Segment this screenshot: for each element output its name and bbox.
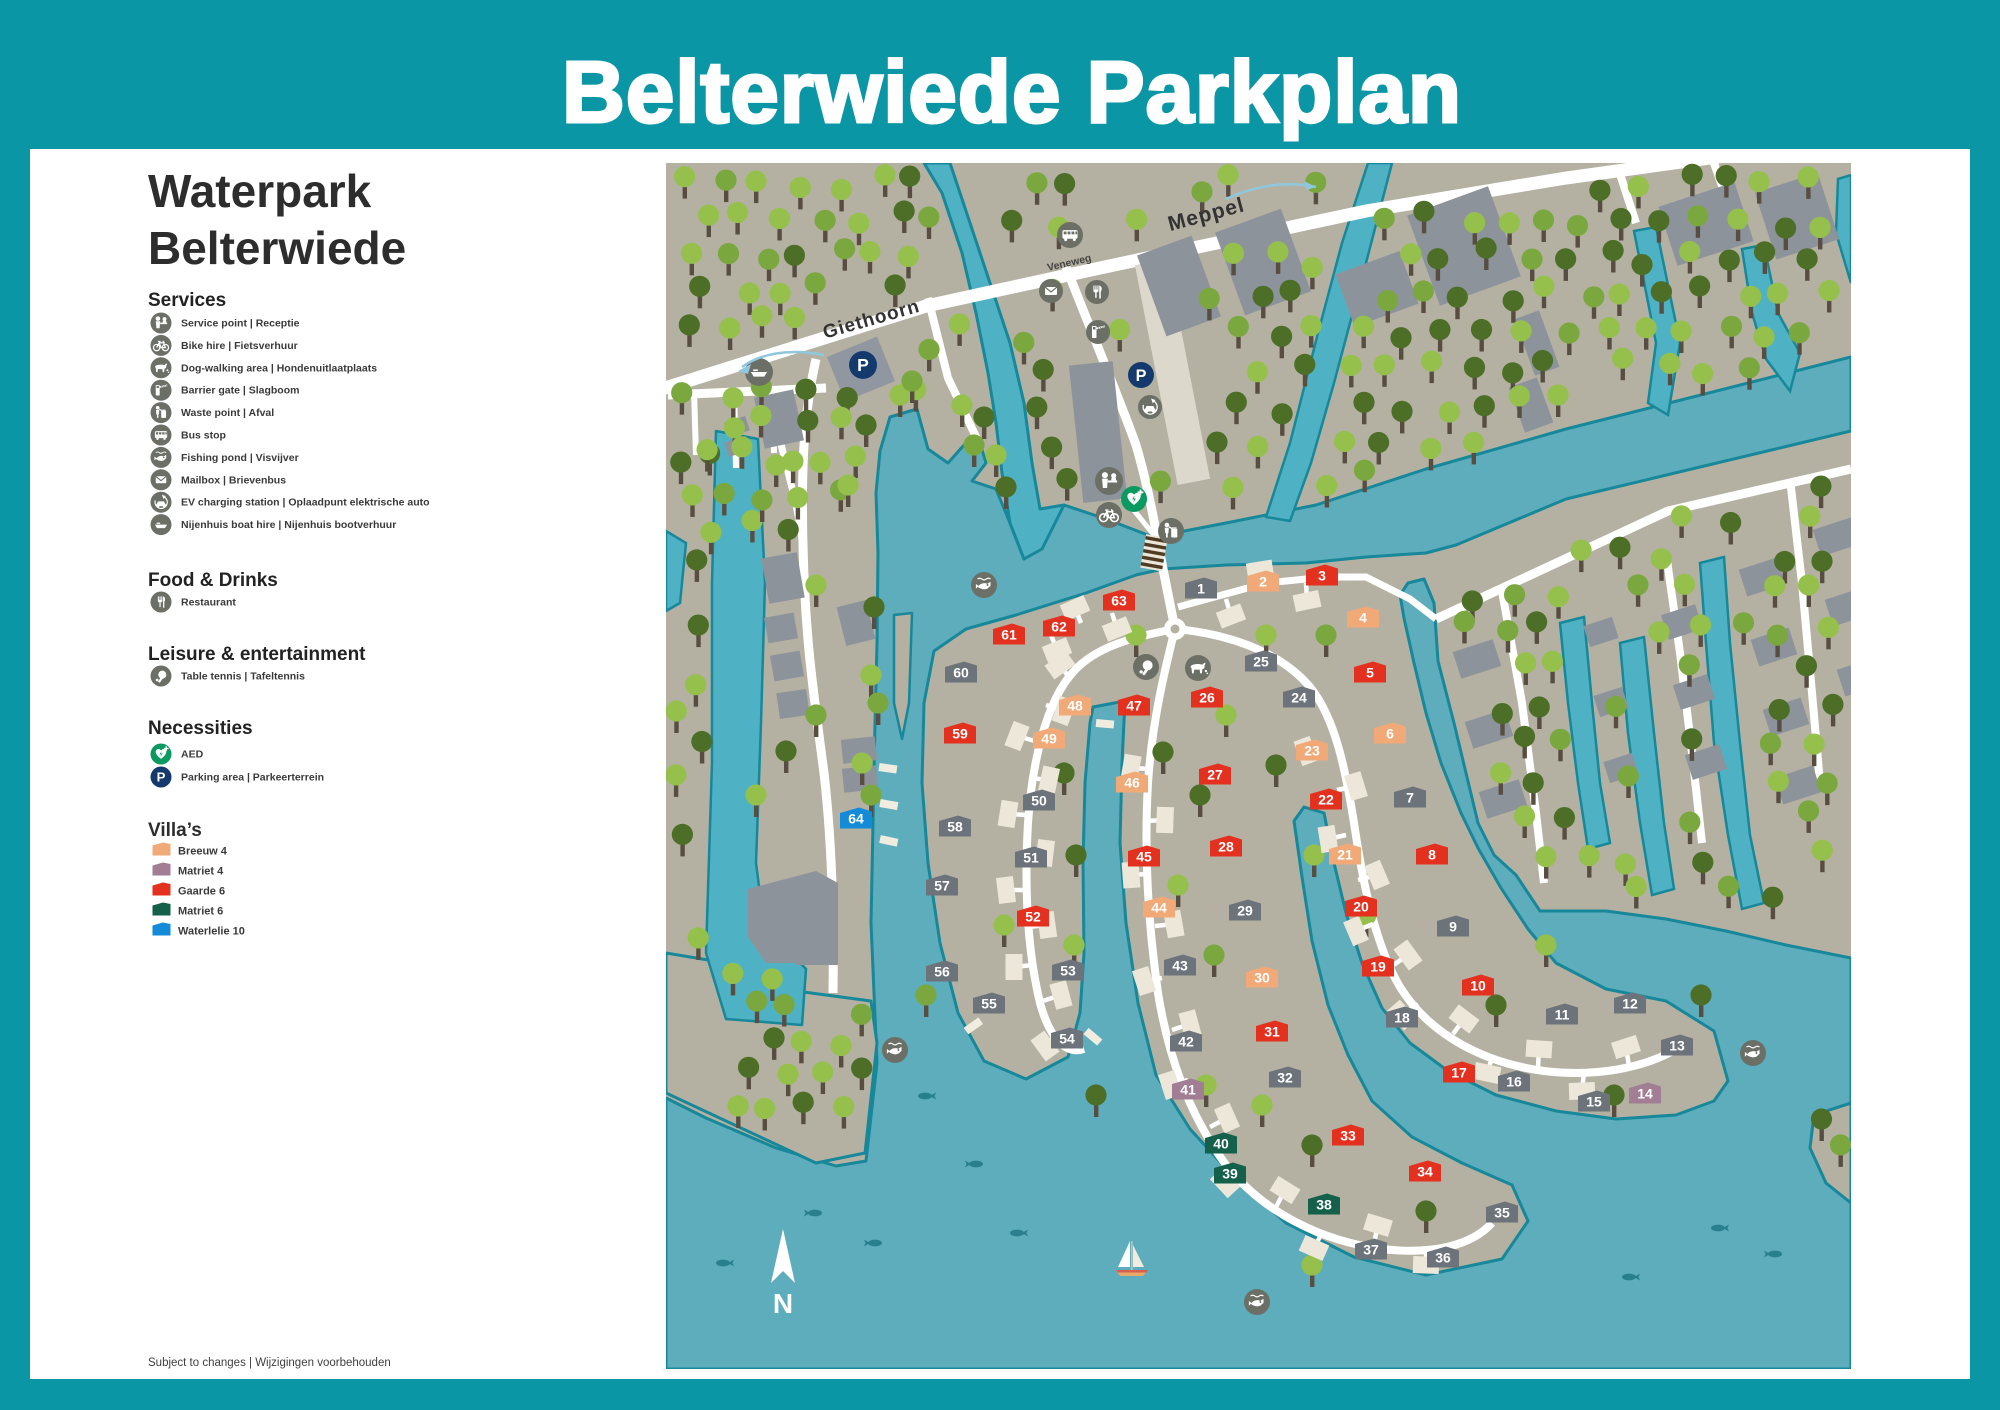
svg-text:1: 1 <box>1197 581 1205 597</box>
svg-text:25: 25 <box>1253 654 1269 670</box>
svg-text:Parking area | Parkeerterrein: Parking area | Parkeerterrein <box>181 772 324 784</box>
svg-text:51: 51 <box>1023 850 1039 866</box>
svg-text:13: 13 <box>1669 1038 1685 1054</box>
svg-text:61: 61 <box>1001 627 1017 643</box>
svg-text:10: 10 <box>1470 978 1486 994</box>
svg-text:33: 33 <box>1340 1128 1356 1144</box>
svg-text:8: 8 <box>1428 847 1436 863</box>
svg-text:21: 21 <box>1337 847 1353 863</box>
svg-text:11: 11 <box>1555 1007 1570 1023</box>
svg-text:52: 52 <box>1025 909 1041 925</box>
svg-text:Bus stop: Bus stop <box>181 430 226 442</box>
svg-text:47: 47 <box>1126 698 1142 714</box>
svg-text:58: 58 <box>947 819 963 835</box>
svg-text:17: 17 <box>1451 1065 1467 1081</box>
svg-text:4: 4 <box>1359 610 1367 626</box>
svg-text:14: 14 <box>1637 1086 1653 1102</box>
svg-text:Leisure & entertainment: Leisure & entertainment <box>148 644 366 665</box>
svg-text:28: 28 <box>1218 839 1234 855</box>
svg-text:59: 59 <box>952 726 968 742</box>
svg-text:Matriet 4: Matriet 4 <box>178 866 224 878</box>
svg-text:Restaurant: Restaurant <box>181 597 236 609</box>
svg-text:64: 64 <box>848 811 864 827</box>
svg-text:Services: Services <box>148 290 226 311</box>
svg-text:39: 39 <box>1222 1166 1238 1182</box>
svg-text:60: 60 <box>953 665 969 681</box>
svg-text:26: 26 <box>1199 690 1215 706</box>
svg-text:Belterwiede: Belterwiede <box>148 222 406 274</box>
svg-text:Nijenhuis boat hire | Nijenhui: Nijenhuis boat hire | Nijenhuis bootverh… <box>181 519 396 531</box>
svg-text:7: 7 <box>1406 790 1414 806</box>
svg-text:46: 46 <box>1124 775 1140 791</box>
svg-text:31: 31 <box>1264 1024 1280 1040</box>
svg-text:22: 22 <box>1318 792 1334 808</box>
svg-text:29: 29 <box>1237 903 1253 919</box>
svg-text:63: 63 <box>1111 593 1127 609</box>
svg-text:EV charging station | Oplaadpu: EV charging station | Oplaadpunt elektri… <box>181 497 430 509</box>
svg-text:35: 35 <box>1494 1205 1510 1221</box>
svg-text:Waterlelie 10: Waterlelie 10 <box>178 926 245 938</box>
svg-text:P: P <box>857 355 869 375</box>
svg-text:34: 34 <box>1417 1164 1433 1180</box>
svg-text:44: 44 <box>1151 900 1167 916</box>
svg-text:45: 45 <box>1136 849 1152 865</box>
svg-text:6: 6 <box>1386 726 1394 742</box>
svg-text:P: P <box>1136 367 1147 385</box>
svg-text:19: 19 <box>1370 959 1386 975</box>
svg-text:24: 24 <box>1291 690 1307 706</box>
svg-text:Breeuw 4: Breeuw 4 <box>178 846 228 858</box>
svg-text:54: 54 <box>1059 1031 1075 1047</box>
svg-text:Belterwiede Parkplan: Belterwiede Parkplan <box>562 44 1462 141</box>
svg-text:15: 15 <box>1586 1094 1602 1110</box>
svg-text:20: 20 <box>1353 899 1369 915</box>
svg-text:Subject to changes | Wijziging: Subject to changes | Wijzigingen voorbeh… <box>148 1357 391 1369</box>
svg-text:9: 9 <box>1449 919 1457 935</box>
svg-text:18: 18 <box>1394 1010 1410 1026</box>
svg-text:56: 56 <box>934 964 950 980</box>
svg-text:5: 5 <box>1366 665 1374 681</box>
svg-text:Mailbox | Brievenbus: Mailbox | Brievenbus <box>181 474 286 486</box>
svg-text:32: 32 <box>1277 1070 1293 1086</box>
svg-text:Bike hire | Fietsverhuur: Bike hire | Fietsverhuur <box>181 340 298 352</box>
svg-text:P: P <box>157 770 166 785</box>
svg-text:43: 43 <box>1172 958 1188 974</box>
svg-text:36: 36 <box>1435 1250 1451 1266</box>
svg-text:49: 49 <box>1041 731 1057 747</box>
svg-text:57: 57 <box>934 878 950 894</box>
svg-text:53: 53 <box>1060 963 1076 979</box>
svg-text:2: 2 <box>1259 574 1267 590</box>
svg-text:50: 50 <box>1031 793 1047 809</box>
svg-text:Waste point | Afval: Waste point | Afval <box>181 407 274 419</box>
svg-text:55: 55 <box>981 996 997 1012</box>
svg-text:38: 38 <box>1316 1197 1332 1213</box>
svg-text:27: 27 <box>1207 767 1223 783</box>
svg-text:Table tennis | Tafeltennis: Table tennis | Tafeltennis <box>181 671 305 683</box>
svg-text:Food & Drinks: Food & Drinks <box>148 570 278 591</box>
svg-text:Matriet 6: Matriet 6 <box>178 906 223 918</box>
svg-text:42: 42 <box>1178 1034 1194 1050</box>
svg-text:Villa’s: Villa’s <box>148 820 202 841</box>
svg-text:Fishing pond | Visvijver: Fishing pond | Visvijver <box>181 452 299 464</box>
svg-text:16: 16 <box>1506 1074 1522 1090</box>
svg-text:62: 62 <box>1051 619 1067 635</box>
svg-text:40: 40 <box>1213 1136 1229 1152</box>
svg-text:3: 3 <box>1318 568 1326 584</box>
svg-text:Necessities: Necessities <box>148 718 253 739</box>
svg-text:Barrier gate | Slagboom: Barrier gate | Slagboom <box>181 385 299 397</box>
svg-text:41: 41 <box>1180 1082 1196 1098</box>
svg-text:48: 48 <box>1067 698 1083 714</box>
svg-text:Waterpark: Waterpark <box>148 165 372 217</box>
svg-text:12: 12 <box>1622 996 1638 1012</box>
svg-text:AED: AED <box>181 749 204 761</box>
svg-text:Gaarde 6: Gaarde 6 <box>178 886 225 898</box>
svg-text:30: 30 <box>1254 970 1270 986</box>
svg-text:N: N <box>773 1288 793 1319</box>
svg-text:Dog-walking area | Hondenuitla: Dog-walking area | Hondenuitlaatplaats <box>181 362 377 374</box>
svg-text:37: 37 <box>1363 1242 1379 1258</box>
svg-text:23: 23 <box>1304 743 1320 759</box>
svg-text:Service point | Receptie: Service point | Receptie <box>181 318 300 330</box>
